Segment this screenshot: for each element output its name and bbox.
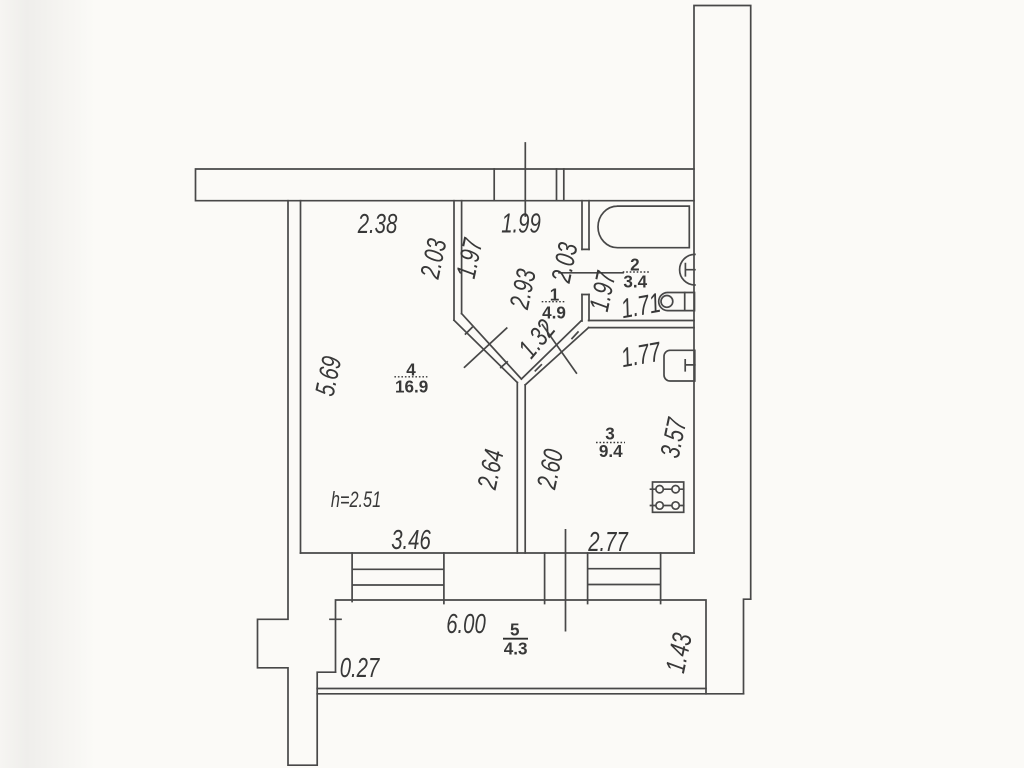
svg-text:0.27: 0.27 [340,653,381,684]
svg-text:2.64: 2.64 [472,447,510,493]
svg-text:h=2.51: h=2.51 [331,488,381,513]
svg-text:2.03: 2.03 [546,240,585,286]
svg-text:3.4: 3.4 [623,271,647,292]
svg-text:2.77: 2.77 [587,527,629,558]
svg-text:1.77: 1.77 [619,337,665,374]
svg-text:5: 5 [510,619,520,640]
svg-text:3.57: 3.57 [655,414,694,460]
svg-text:1.43: 1.43 [660,630,698,676]
svg-text:2.38: 2.38 [357,209,398,240]
svg-text:2.03: 2.03 [415,236,454,282]
svg-text:1.99: 1.99 [501,209,541,240]
svg-text:1.71: 1.71 [619,288,663,325]
svg-text:4.9: 4.9 [542,302,566,323]
svg-text:16.9: 16.9 [395,376,428,397]
svg-text:6.00: 6.00 [446,609,486,640]
svg-text:5.69: 5.69 [310,354,348,399]
svg-text:2.60: 2.60 [531,446,570,492]
svg-text:2.93: 2.93 [504,266,543,312]
svg-text:1.97: 1.97 [584,268,623,314]
svg-text:9.4: 9.4 [599,441,623,462]
svg-text:4.3: 4.3 [504,638,528,659]
svg-text:1.97: 1.97 [451,235,490,281]
svg-text:3.46: 3.46 [391,525,431,556]
